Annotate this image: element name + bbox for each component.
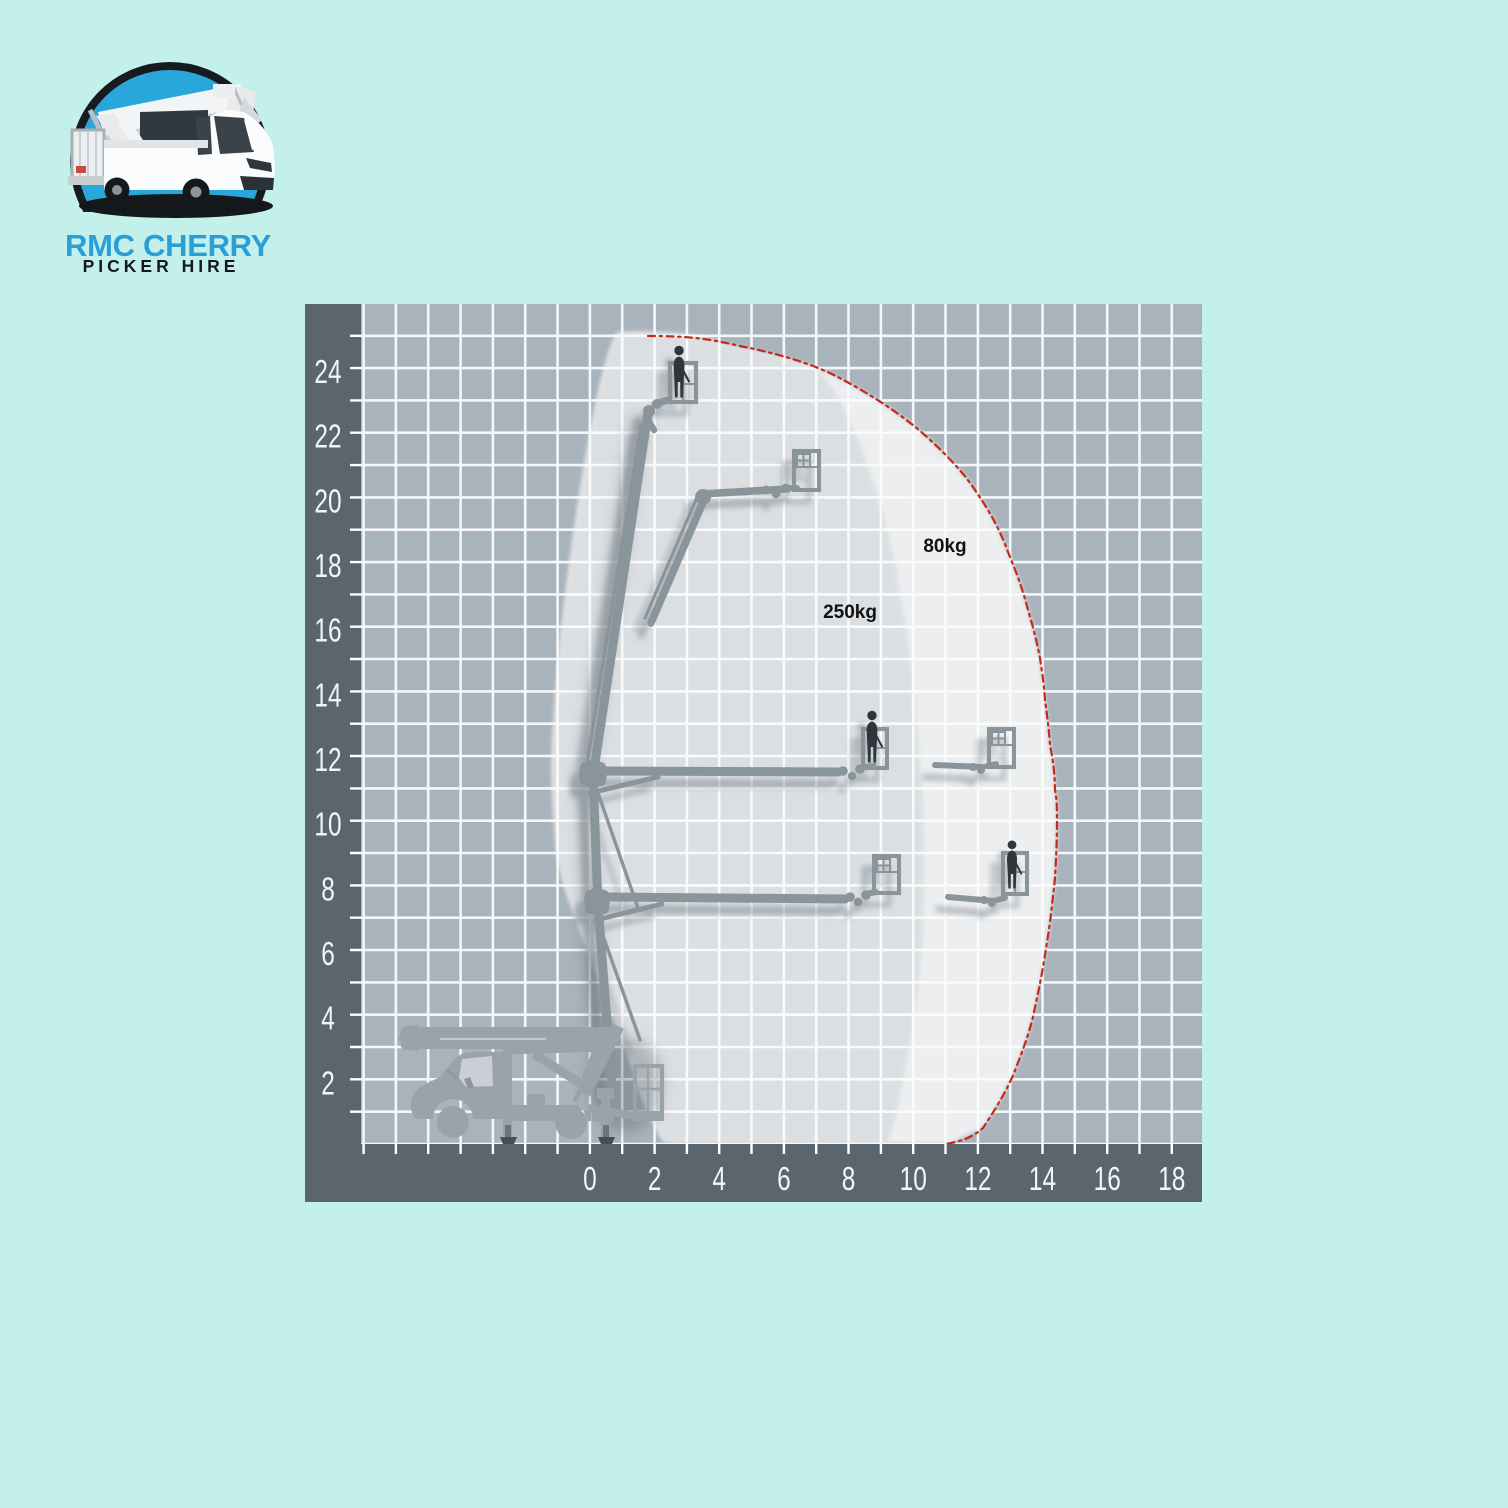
svg-text:PICKER HIRE: PICKER HIRE [83, 256, 240, 276]
svg-text:8: 8 [842, 1162, 856, 1198]
svg-text:18: 18 [314, 549, 341, 585]
svg-text:6: 6 [777, 1162, 791, 1198]
svg-text:250kg: 250kg [823, 602, 877, 623]
svg-text:4: 4 [321, 1001, 335, 1037]
svg-text:2: 2 [648, 1162, 662, 1198]
svg-text:12: 12 [314, 743, 341, 779]
svg-text:22: 22 [314, 419, 341, 455]
svg-text:0: 0 [583, 1162, 597, 1198]
svg-text:24: 24 [314, 355, 341, 391]
svg-text:14: 14 [314, 678, 341, 714]
svg-text:18: 18 [1158, 1162, 1185, 1198]
svg-text:14: 14 [1029, 1162, 1056, 1198]
svg-text:16: 16 [314, 613, 341, 649]
svg-text:20: 20 [314, 484, 341, 520]
svg-text:8: 8 [321, 872, 335, 908]
svg-text:80kg: 80kg [923, 536, 966, 557]
svg-text:4: 4 [712, 1162, 726, 1198]
svg-text:12: 12 [964, 1162, 991, 1198]
svg-text:10: 10 [314, 807, 341, 843]
svg-text:10: 10 [900, 1162, 927, 1198]
svg-text:6: 6 [321, 937, 335, 973]
svg-text:2: 2 [321, 1066, 335, 1102]
svg-text:16: 16 [1094, 1162, 1121, 1198]
